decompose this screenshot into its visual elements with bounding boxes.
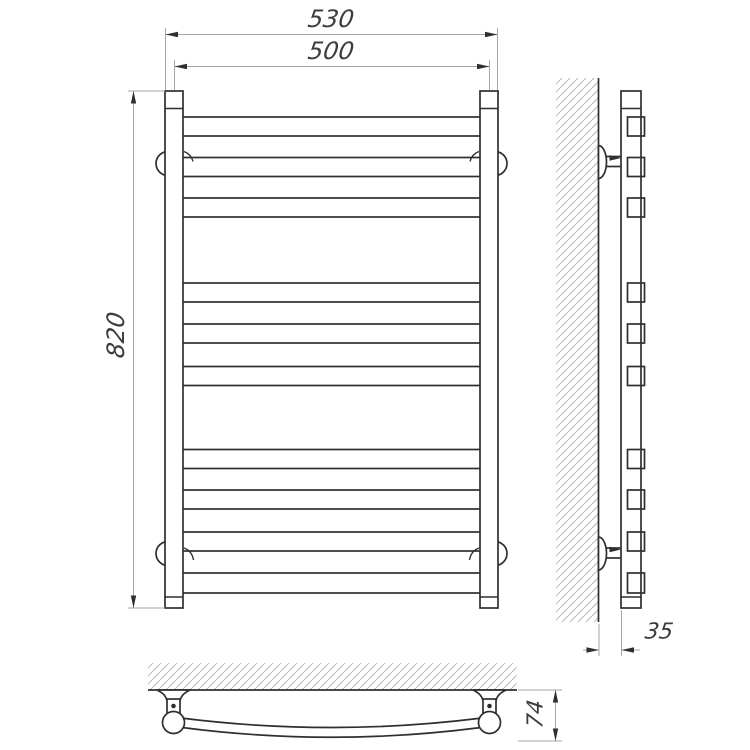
rung [182, 490, 481, 509]
rung [182, 324, 481, 343]
rung-cap [628, 450, 645, 469]
rung [182, 573, 481, 593]
bottom-bracket-right [473, 690, 506, 714]
bottom-wall-hatch [148, 663, 517, 690]
dimension-label-rail-center-span: 500 [306, 37, 356, 65]
rung-cap [628, 198, 645, 217]
side-wall-hatch [556, 78, 599, 622]
arrowhead [166, 32, 179, 37]
bottom-view [148, 663, 517, 737]
rung [182, 367, 481, 386]
technical-drawing-svg [0, 0, 750, 750]
arrowhead [553, 690, 558, 703]
rail-end-circle-right [479, 712, 501, 734]
left-rail [165, 91, 183, 608]
rung-cap [628, 324, 645, 343]
arrowhead [477, 64, 490, 69]
dimension-label-overall-width: 530 [306, 5, 356, 33]
bracket-screw-dot [171, 704, 176, 709]
curved-rung-top-edge [181, 718, 482, 728]
side-bracket-upper [599, 146, 622, 179]
rung-cap [628, 532, 645, 551]
rung [182, 532, 481, 551]
side-bracket-lower [599, 537, 622, 570]
arrowhead [131, 91, 136, 104]
rung [182, 158, 481, 177]
side-view [556, 78, 645, 622]
rung-cap [628, 573, 645, 593]
bracket-screw-dot [487, 704, 492, 709]
rung-cap [628, 490, 645, 509]
curved-rung-profile [181, 718, 482, 737]
front-view [156, 91, 507, 608]
right-rail [480, 91, 498, 608]
rung-cap [628, 158, 645, 177]
arrowhead [553, 729, 558, 742]
rung-cap [628, 367, 645, 386]
rail-end-circle-left [163, 712, 185, 734]
rung [182, 117, 481, 136]
arrowhead [131, 596, 136, 609]
arrowhead [175, 64, 188, 69]
front-rungs [182, 117, 481, 593]
rung-cap [628, 117, 645, 136]
rung [182, 198, 481, 217]
rail-cap-lines [165, 109, 498, 598]
arrowhead [622, 647, 635, 652]
drawing-canvas: 530 500 820 35 74 [0, 0, 750, 750]
rung [182, 283, 481, 302]
bottom-bracket-left [157, 690, 190, 714]
rung [182, 450, 481, 469]
bracket-wall-plate [599, 146, 607, 179]
dimension-label-overall-height: 820 [102, 310, 130, 360]
dimension-label-profile-depth: 74 [524, 698, 549, 730]
arrowhead [587, 647, 600, 652]
bracket-wall-plate [599, 537, 607, 570]
arrowhead [485, 32, 498, 37]
dimension-label-wall-clearance: 35 [643, 620, 675, 645]
curved-rung-bottom-edge [182, 728, 481, 738]
rung-cap [628, 283, 645, 302]
dimension-arrows [587, 647, 635, 652]
